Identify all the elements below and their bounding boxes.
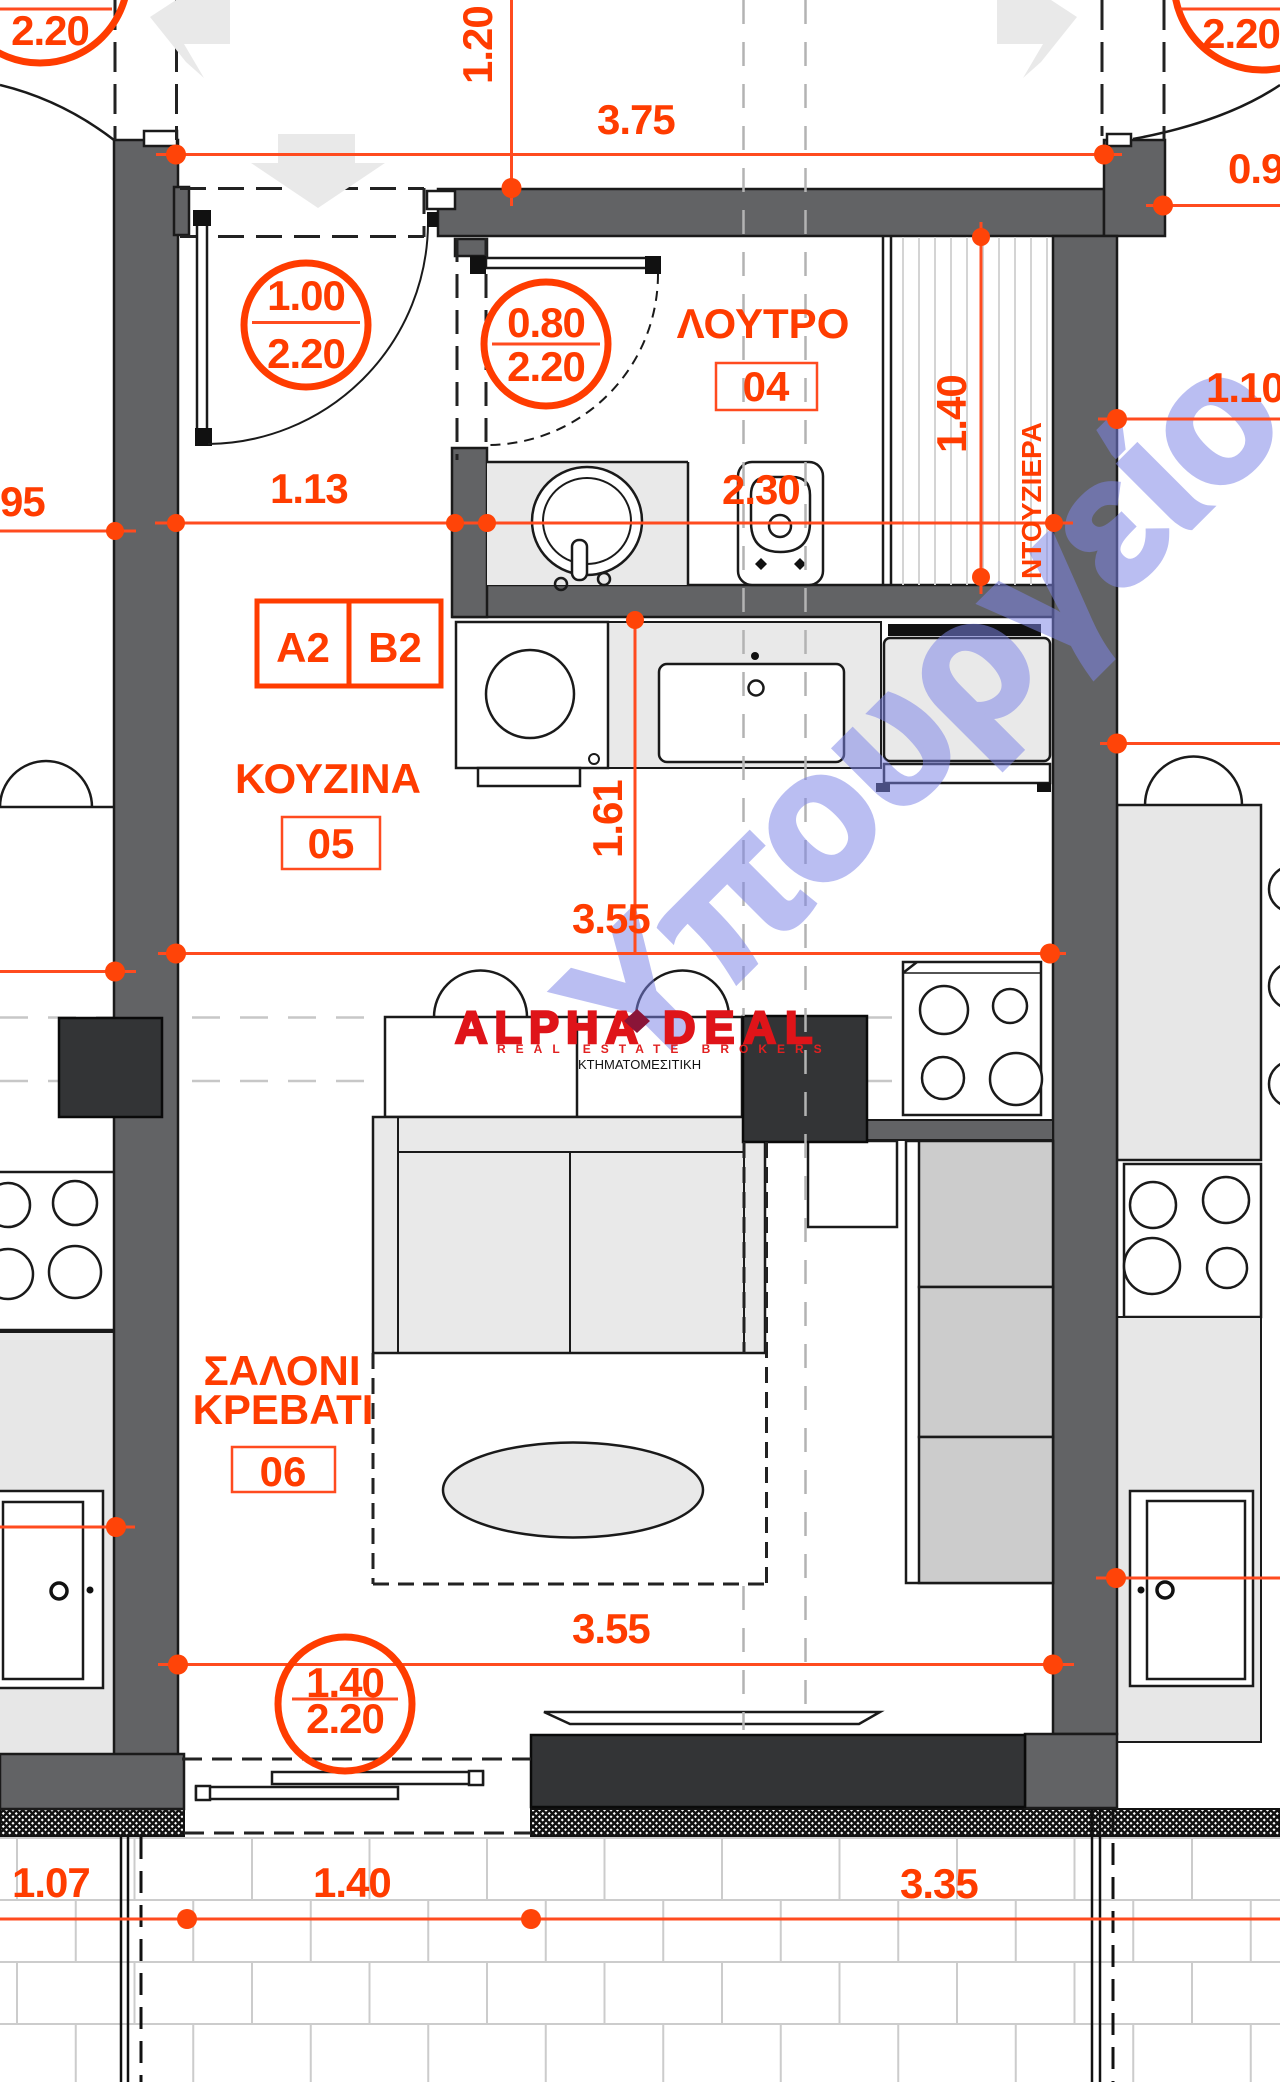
svg-text:2.20: 2.20 (11, 7, 89, 54)
svg-text:ΝΤΟΥΖΙΕΡΑ: ΝΤΟΥΖΙΕΡΑ (1016, 422, 1047, 579)
svg-text:ΚΡΕΒΑΤΙ: ΚΡΕΒΑΤΙ (193, 1386, 374, 1433)
svg-text:B2: B2 (368, 624, 422, 671)
svg-text:ΚΟΥΖΙΝΑ: ΚΟΥΖΙΝΑ (235, 755, 421, 802)
svg-text:A2: A2 (276, 624, 330, 671)
svg-text:2.20: 2.20 (306, 1695, 384, 1742)
svg-text:REAL ESTATE BROKERS: REAL ESTATE BROKERS (497, 1042, 832, 1056)
svg-text:06: 06 (260, 1448, 307, 1495)
svg-text:1.20: 1.20 (454, 6, 501, 84)
svg-text:1.00: 1.00 (267, 272, 345, 319)
svg-text:3.55: 3.55 (572, 1605, 650, 1652)
svg-text:0.95: 0.95 (1228, 145, 1280, 192)
svg-text:2.30: 2.30 (722, 466, 800, 513)
svg-text:0.80: 0.80 (507, 299, 585, 346)
svg-text:3.75: 3.75 (597, 96, 675, 143)
svg-text:95: 95 (0, 478, 45, 525)
svg-text:1.61: 1.61 (584, 780, 631, 858)
svg-text:2.20: 2.20 (267, 330, 345, 377)
svg-text:3.35: 3.35 (900, 1860, 978, 1907)
svg-text:ΛΟΥΤΡΟ: ΛΟΥΤΡΟ (677, 300, 850, 347)
svg-text:ΚΤΗΜΑΤΟΜΕΣΙΤΙΚΗ: ΚΤΗΜΑΤΟΜΕΣΙΤΙΚΗ (578, 1057, 701, 1072)
svg-text:05: 05 (308, 820, 355, 867)
svg-text:2.20: 2.20 (1202, 10, 1280, 57)
svg-text:3.55: 3.55 (572, 895, 650, 942)
svg-text:1.07: 1.07 (12, 1859, 90, 1906)
svg-text:1.40: 1.40 (928, 375, 975, 453)
svg-text:1.10: 1.10 (1206, 364, 1280, 411)
svg-text:1.40: 1.40 (313, 1859, 391, 1906)
svg-text:1.13: 1.13 (270, 465, 348, 512)
svg-text:04: 04 (743, 363, 790, 410)
svg-text:2.20: 2.20 (507, 343, 585, 390)
